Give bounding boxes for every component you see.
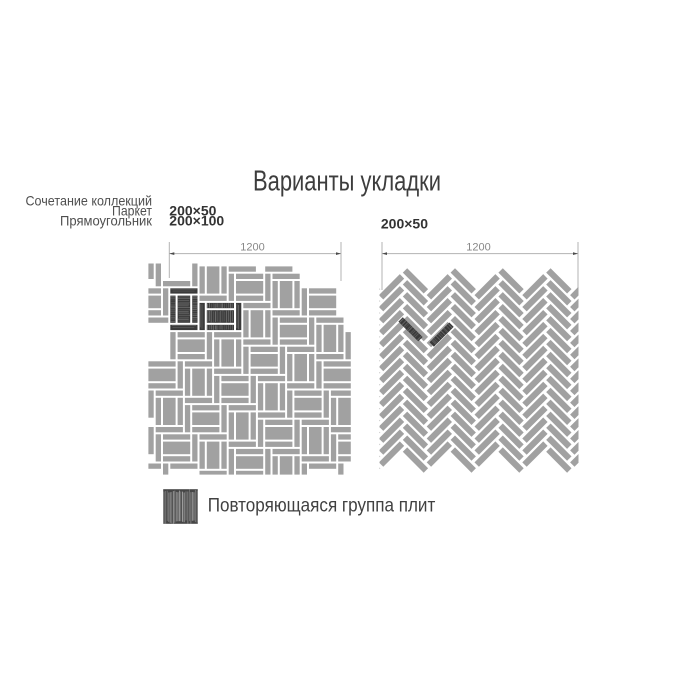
svg-text:Повторяющаяся группа плит: Повторяющаяся группа плит: [208, 495, 436, 517]
svg-text:Прямоугольник: Прямоугольник: [60, 213, 153, 229]
svg-text:1200: 1200: [240, 241, 264, 253]
svg-text:200×50: 200×50: [381, 216, 428, 232]
svg-text:1200: 1200: [466, 241, 490, 253]
svg-text:Варианты укладки: Варианты укладки: [253, 165, 441, 197]
svg-text:200×100: 200×100: [169, 213, 224, 229]
